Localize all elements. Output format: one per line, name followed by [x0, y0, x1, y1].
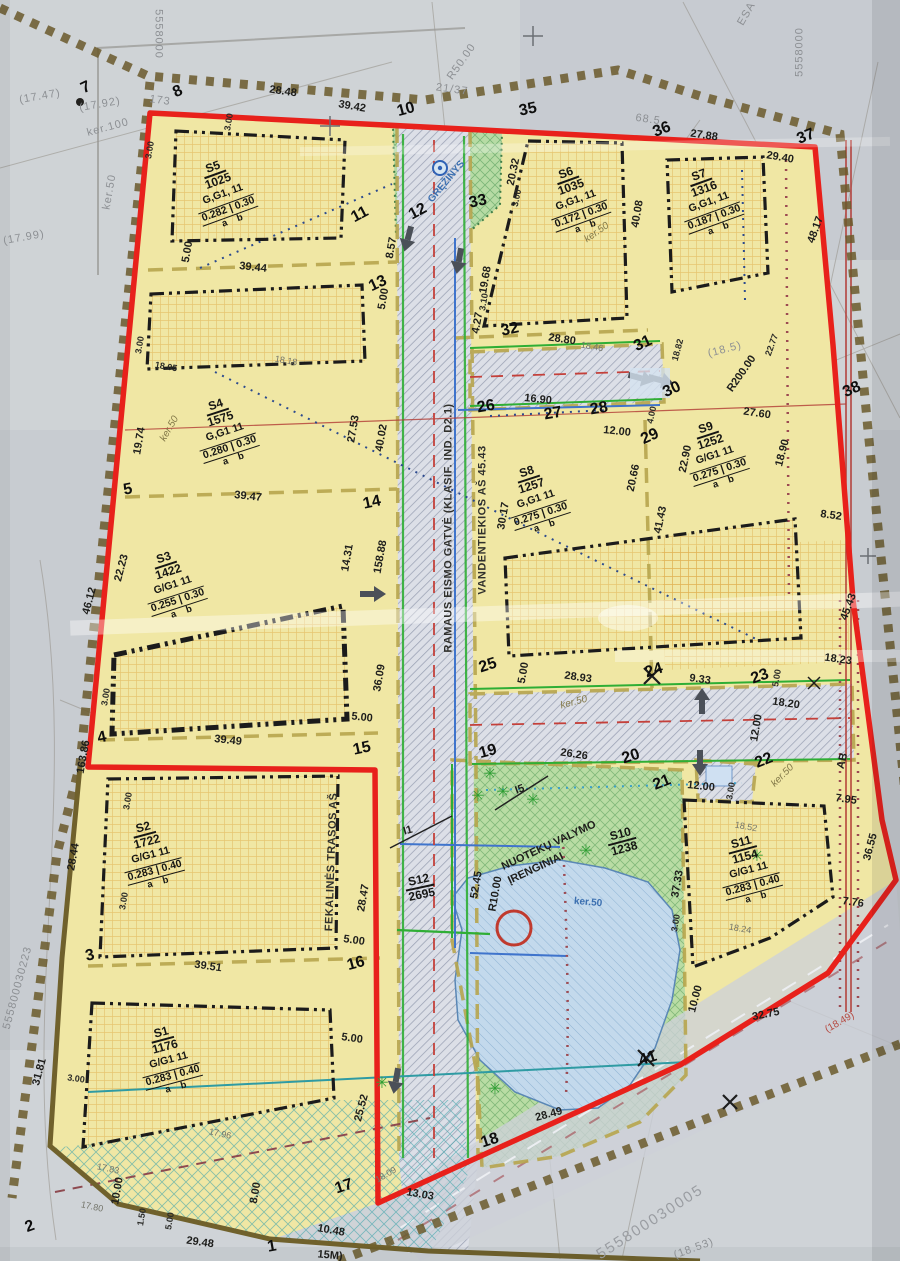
elevation-note: 18.18 [274, 355, 298, 368]
plot-label: S11176G/G1 110.283 | 0.40a b [130, 1016, 206, 1101]
dimension-label: 10.00 [110, 1176, 126, 1205]
dimension-label: 22.77 [764, 333, 780, 357]
boundary-point-number: 3 [84, 947, 96, 965]
boundary-point-number: 19 [477, 742, 498, 762]
tree-icon: ✳ [496, 785, 509, 801]
dimension-label: AB [836, 752, 851, 770]
elevation-note: 18.09 [374, 1165, 398, 1184]
label-layer: 28.4839.4221/377817310353627.883729.4068… [0, 0, 900, 1261]
surface-note: ker.50 [159, 415, 181, 444]
dimension-label: 163.86 [76, 739, 93, 774]
surface-note: ker.50 [770, 763, 796, 789]
scan-annotation: (17.99) [2, 229, 45, 247]
dimension-label: 40.02 [374, 423, 390, 452]
dimension-label: 5.00 [181, 240, 196, 263]
scan-annotation: (17.92) [78, 96, 121, 114]
tree-icon: ✳ [579, 844, 592, 860]
dimension-label: 18.90 [774, 438, 792, 467]
scan-annotation: (17.47) [18, 88, 61, 106]
dimension-label: 3.00 [725, 782, 737, 801]
boundary-point-number: 27 [543, 405, 563, 424]
boundary-point-number: 38 [841, 379, 864, 401]
scan-annotation: 555800030223 [2, 945, 35, 1030]
boundary-point-number: 24 [643, 661, 665, 682]
plot-label: S122695 [402, 868, 437, 904]
dimension-label: 12.00 [749, 713, 765, 742]
scan-annotation: ESA [736, 0, 758, 27]
dimension-label: 39.51 [194, 960, 223, 975]
dimension-label: 9.33 [689, 673, 712, 687]
scan-annotation: ker.50 [101, 173, 118, 210]
plot-label: S101238 [604, 821, 640, 858]
elevation-note: (18.49) [824, 1011, 856, 1036]
scan-annotation: ker.100 [86, 117, 130, 139]
water-note: ker.50 [573, 897, 602, 909]
boundary-point-number: 11 [349, 204, 371, 226]
plot-label: S21722G/G1 110.283 | 0.40a b [112, 811, 188, 896]
boundary-point-number: 14 [362, 493, 383, 512]
dimension-label: 29.40 [765, 150, 794, 166]
boundary-point-number: 7 [79, 79, 94, 97]
dimension-label: 5.00 [343, 934, 366, 948]
scan-annotation: 5558000 [153, 9, 164, 59]
boundary-point-number: 10 [395, 100, 416, 120]
water-note: GRĘŽINYS [427, 159, 468, 205]
tree-icon: ✳ [488, 1082, 501, 1098]
dimension-label: R10.00 [488, 876, 505, 913]
dimension-label: 3.00 [670, 914, 682, 933]
dimension-label: 40.08 [630, 199, 646, 228]
dimension-label: 20.32 [506, 157, 522, 186]
boundary-point-number: 5 [122, 481, 134, 498]
dimension-label: 4.27 [471, 311, 486, 334]
plot-label: S41575G,G1 110.280 | 0.30a b [185, 387, 264, 474]
scanned-cadastral-plan: 28.4839.4221/377817310353627.883729.4068… [0, 0, 900, 1261]
boundary-point-number: 25 [477, 656, 499, 677]
dimension-label: 3.00 [511, 188, 523, 207]
dimension-label: 7.95 [835, 793, 858, 807]
dimension-label: 18.20 [772, 697, 801, 712]
dimension-label: 45.43 [839, 592, 859, 622]
dimension-label: 37.33 [670, 869, 686, 898]
plot-label: S111154G/G1 110.283 | 0.40a b [710, 826, 786, 911]
dimension-label: 29.48 [186, 1236, 215, 1251]
plot-label: S91252G/G1 110.275 | 0.30a b [675, 410, 754, 497]
scan-annotation: (18.53) [672, 1237, 715, 1261]
boundary-point-number: 29 [639, 426, 662, 448]
dimension-label: 3.00 [223, 113, 235, 132]
street-label: VANDENTIEKIOS AŠ 45.43 [478, 445, 489, 594]
dimension-label: 41.43 [653, 505, 669, 534]
dimension-label: 13.03 [405, 1187, 434, 1203]
dimension-label: 39.47 [234, 490, 263, 504]
dimension-label: 25.52 [353, 1093, 371, 1122]
dimension-label: 27.53 [346, 414, 362, 443]
dimension-label: 18.05 [154, 361, 178, 374]
dimension-label: 22.23 [113, 553, 131, 582]
dimension-label: 39.49 [214, 734, 243, 748]
elevation-note: 17.83 [96, 1162, 120, 1175]
dimension-label: 39.44 [239, 261, 268, 275]
dimension-label: 28.44 [66, 842, 82, 871]
boundary-point-number: 22 [753, 750, 775, 772]
scan-annotation: (18.5) [707, 340, 743, 360]
boundary-point-number: 8 [171, 83, 186, 101]
boundary-point-number: 33 [468, 192, 489, 211]
dimension-label: 20.66 [626, 463, 642, 492]
boundary-point-number: 18 [479, 1131, 501, 1152]
boundary-point-number: 21 [651, 772, 673, 794]
tree-icon: ✳ [483, 767, 496, 783]
dimension-label: 28.80 [548, 333, 577, 348]
boundary-point-number: 4 [96, 729, 108, 747]
street-label: FEKALINĖS TRASOS AŠ [324, 793, 340, 932]
boundary-point-number: 15 [352, 739, 373, 758]
dimension-label: 5.00 [164, 1212, 176, 1231]
dimension-label: 31.81 [31, 1057, 49, 1086]
dimension-label: 12.00 [687, 780, 716, 794]
dimension-label: 52.45 [469, 870, 485, 899]
dimension-label: 28.93 [564, 671, 593, 686]
elevation-note: 18.24 [728, 923, 752, 936]
dimension-label: 5.00 [377, 287, 392, 310]
dimension-label: 12.00 [603, 425, 632, 439]
dimension-label: 3.00 [118, 892, 130, 911]
dimension-label: 5.00 [351, 711, 373, 724]
dimension-label: I1 [402, 824, 414, 837]
street-label: RAMAUS EISMO GATVĖ (KLASIF. IND. D2.1) [444, 403, 455, 652]
dimension-label: 26.26 [560, 748, 589, 763]
dimension-label: 10.48 [316, 1223, 345, 1239]
boundary-point-number: 16 [345, 954, 366, 974]
dimension-label: 18.82 [671, 338, 686, 362]
dimension-label: 3.00 [67, 1073, 86, 1084]
boundary-point-number: 12 [406, 201, 429, 223]
dimension-label: 28.49 [534, 1106, 563, 1124]
boundary-point-number: 23 [749, 666, 771, 687]
scan-annotation: 5558000 [795, 27, 806, 77]
elevation-note: 17.96 [208, 1127, 232, 1140]
dimension-label: 8.57 [385, 236, 400, 259]
dimension-label: 3.00 [100, 688, 112, 707]
dimension-label: 158.88 [373, 539, 390, 574]
boundary-point-number: 17 [333, 1177, 355, 1198]
dimension-label: 14.31 [340, 543, 356, 572]
boundary-point-number: 35 [518, 100, 539, 119]
plot-label: S51025G,G1, 110.282 | 0.30a b [182, 148, 262, 236]
dimension-label: 5.00 [341, 1032, 364, 1046]
scan-annotation: R50.00 [446, 42, 479, 82]
dimension-label: 36.09 [372, 663, 388, 692]
boundary-point-number: 2 [23, 1218, 37, 1236]
dimension-label: 19.74 [132, 426, 148, 455]
dimension-label: 7.76 [842, 896, 865, 910]
dimension-label: 15M) [317, 1249, 343, 1261]
dimension-label: 27.88 [690, 129, 719, 144]
dimension-label: 27.60 [743, 407, 772, 422]
dimension-label: 19.68 [478, 265, 494, 294]
plot-label: S71316G,G1, 110.187 | 0.30a b [668, 156, 748, 244]
boundary-point-number: 26 [476, 398, 496, 417]
tree-icon: ✳ [375, 1076, 388, 1092]
elevation-note: 18.46 [580, 341, 604, 354]
dimension-label: 48.17 [806, 215, 826, 245]
scan-annotation: 68.5 [635, 113, 662, 127]
boundary-point-number: 30 [661, 379, 684, 401]
dimension-label: 32.75 [751, 1007, 780, 1023]
boundary-point-number: 20 [620, 747, 642, 768]
boundary-point-number: 37 [795, 126, 817, 148]
elevation-note: 17.80 [80, 1200, 104, 1213]
dimension-label: 3.00 [122, 792, 134, 811]
dimension-label: 28.48 [269, 85, 298, 100]
dimension-label: 10.00 [687, 984, 705, 1013]
dimension-label: 36.55 [862, 832, 880, 861]
dimension-label: 8.52 [820, 509, 843, 523]
dimension-label: 5.00 [771, 669, 783, 688]
tree-icon: ✳ [471, 789, 484, 805]
plot-label: S31422G/G1 110.255 | 0.30a b [133, 540, 212, 627]
boundary-point-number: 31 [632, 333, 655, 355]
surface-note: ker.50 [559, 695, 588, 712]
boundary-point-number: 41 [637, 1049, 659, 1070]
scan-annotation: 21/37 [435, 82, 469, 97]
dimension-label: 39.42 [337, 99, 366, 115]
dimension-label: R200.00 [726, 354, 759, 394]
dimension-label: 5.00 [517, 661, 532, 684]
dimension-label: 8.00 [249, 1181, 264, 1204]
dimension-label: 28.47 [356, 883, 372, 912]
tree-icon: ✳ [526, 793, 539, 809]
dimension-label: 46.12 [81, 586, 99, 615]
dimension-label: I5 [514, 783, 526, 796]
dimension-label: 18.23 [824, 653, 853, 668]
boundary-point-number: 32 [500, 320, 521, 339]
boundary-point-number: 28 [589, 400, 609, 419]
boundary-point-number: 1 [266, 1238, 278, 1255]
dimension-label: 1.50 [136, 1208, 148, 1227]
dimension-label: 4.00 [646, 405, 658, 424]
dimension-label: 3.00 [144, 141, 156, 160]
dimension-label: 3.10 [478, 293, 490, 312]
dimension-label: 3.00 [134, 336, 146, 355]
scan-annotation: 173 [149, 94, 172, 108]
